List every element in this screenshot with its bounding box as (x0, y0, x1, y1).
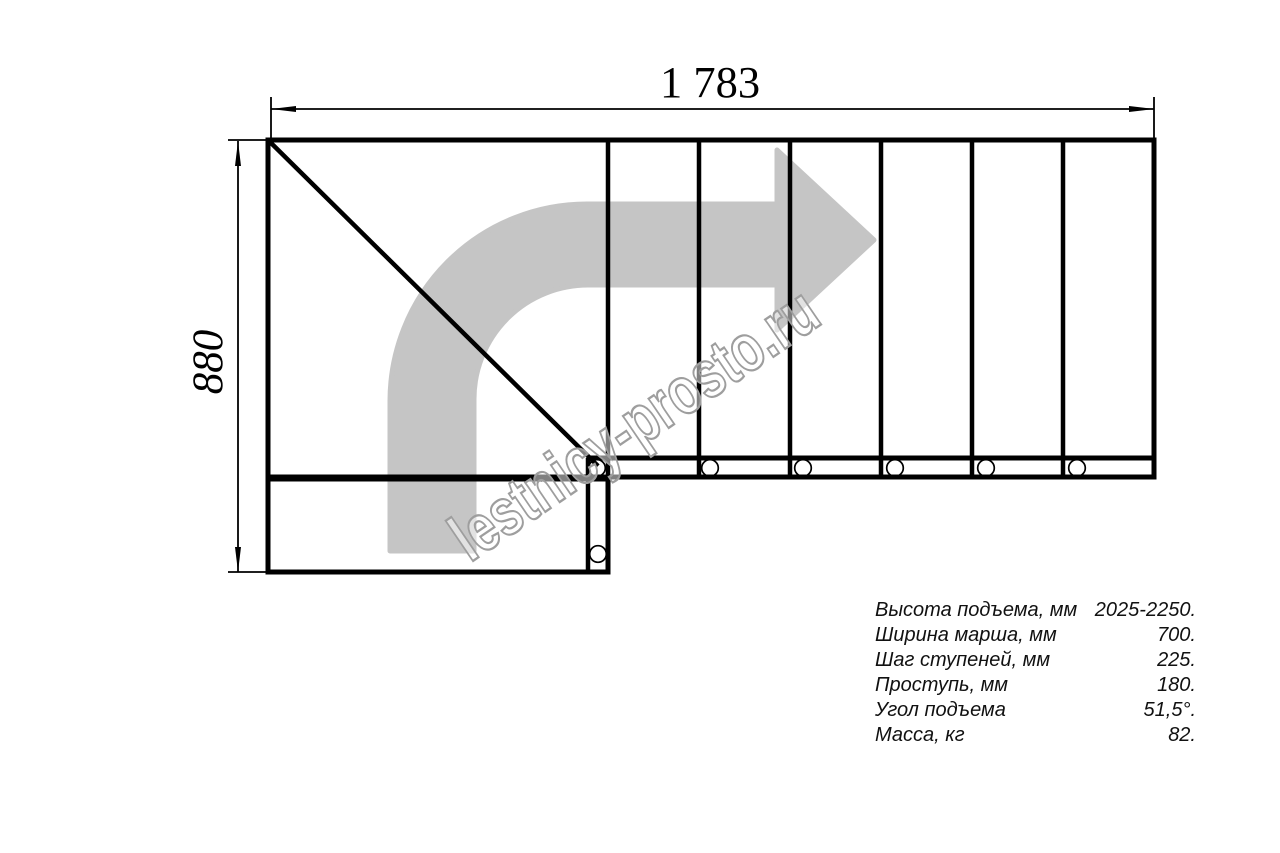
svg-text:1 783: 1 783 (660, 57, 760, 107)
svg-text:51,5°.: 51,5°. (1144, 699, 1196, 721)
svg-text:Угол подъема: Угол подъема (874, 699, 1006, 721)
svg-text:Шаг ступеней, мм: Шаг ступеней, мм (875, 649, 1050, 671)
svg-text:700.: 700. (1157, 624, 1196, 646)
svg-text:180.: 180. (1157, 674, 1196, 696)
svg-text:Масса, кг: Масса, кг (875, 724, 965, 746)
svg-text:Проступь, мм: Проступь, мм (875, 674, 1008, 696)
svg-text:82.: 82. (1168, 724, 1196, 746)
svg-text:225.: 225. (1156, 649, 1196, 671)
svg-text:2025-2250.: 2025-2250. (1094, 599, 1196, 621)
svg-text:Ширина марша, мм: Ширина марша, мм (875, 624, 1057, 646)
svg-text:Высота подъема, мм: Высота подъема, мм (875, 599, 1077, 621)
svg-text:880: 880 (185, 330, 232, 395)
